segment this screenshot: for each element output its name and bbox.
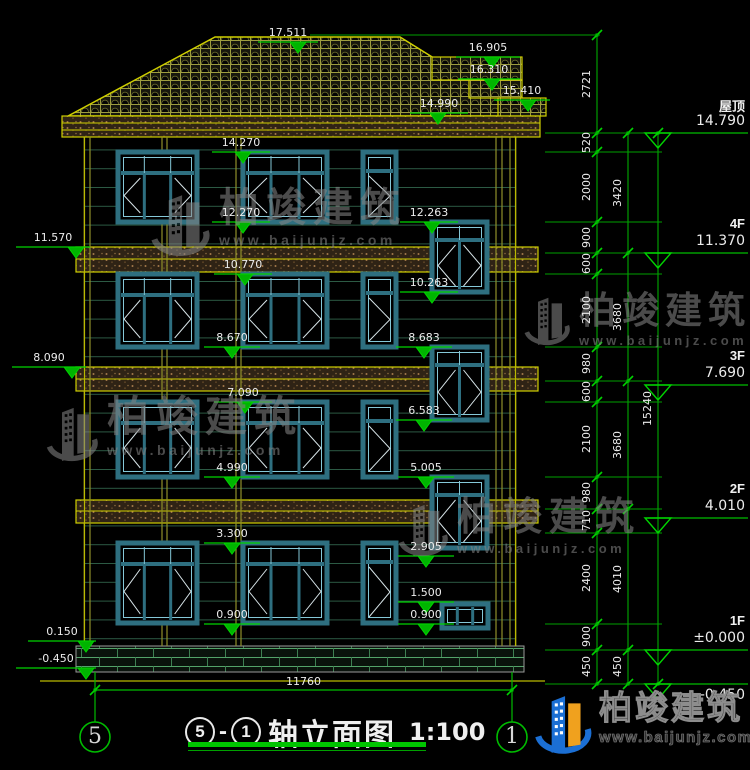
dim-chain-label: 2400 (579, 533, 594, 624)
dim-chain-label: 2000 (579, 152, 594, 222)
brand-text: 柏竣建筑 (599, 691, 750, 726)
drawing-title: 5 - 1 轴立面图 1:100 (185, 710, 485, 754)
level-label: 2F (655, 481, 745, 496)
level-label: 1F (655, 613, 745, 628)
elevation-marker-label: 6.583 (408, 405, 440, 417)
watermark-logo-icon (522, 292, 570, 350)
dim-chain-label: 2100 (579, 274, 594, 347)
dim-chain-label: 450 (579, 650, 594, 684)
elevation-marker-label: 10.770 (224, 259, 263, 271)
watermark-body: 柏竣建筑 www.baijunjz.com (579, 292, 750, 348)
elevation-marker-label: 15.410 (503, 85, 542, 97)
dim-chain-label: 15240 (640, 133, 655, 684)
title-text: 轴立面图 (268, 710, 396, 754)
dim-chain-label: 980 (579, 347, 594, 381)
elevation-marker-label: 14.990 (420, 98, 459, 110)
watermark-logo-icon (148, 188, 210, 262)
elevation-marker-label: 8.090 (33, 352, 65, 364)
elevation-marker-label: 12.270 (222, 207, 261, 219)
plinth (76, 646, 524, 672)
level-value: 11.370 (655, 233, 745, 249)
watermark-url: www.baijunjz.com (107, 442, 303, 458)
watermark: 柏竣建筑 www.baijunjz.com (148, 188, 407, 262)
elevation-marker-label: 10.263 (410, 277, 449, 289)
axis-number: 5 (88, 724, 102, 749)
elevation-marker-label: 8.683 (408, 332, 440, 344)
level-label: 3F (655, 348, 745, 363)
window (363, 402, 396, 477)
watermark-body: 柏竣建筑 www.baijunjz.com (107, 396, 303, 458)
title-underline-thick (188, 742, 426, 747)
elevation-marker-label: 16.310 (470, 64, 509, 76)
elevation-marker-label: 1.500 (410, 587, 442, 599)
title-underline-thin (188, 750, 426, 751)
elevation-marker-label: 14.270 (222, 137, 261, 149)
brand-logo-icon (534, 691, 592, 757)
elevation-marker-label: -0.450 (38, 653, 73, 665)
watermark: 柏竣建筑 www.baijunjz.com (522, 292, 750, 350)
watermark-url: www.baijunjz.com (219, 232, 407, 248)
elevation-marker-label: 0.900 (216, 609, 248, 621)
footer-logo: 柏竣建筑 www.baijunjz.com (534, 691, 750, 757)
dim-chain-label: 3680 (610, 253, 625, 381)
dim-chain-label: 980 (579, 477, 594, 509)
elevation-marker-label: 17.511 (269, 27, 308, 39)
elevation-marker-label: 2.905 (410, 541, 442, 553)
eave-band (62, 116, 540, 137)
dim-chain-label: 2721 (579, 35, 594, 133)
elevation-drawing: 柏竣建筑 www.baijunjz.com 柏竣建筑 www.baijunjz.… (0, 0, 750, 770)
elevation-marker-label: 3.300 (216, 528, 248, 540)
watermark-url: www.baijunjz.com (579, 333, 750, 348)
window (363, 543, 396, 623)
elevation-marker-label: 12.263 (410, 207, 449, 219)
level-value: 14.790 (655, 113, 745, 129)
watermark-brand: 柏竣建筑 (107, 396, 303, 438)
axis-number: 1 (505, 724, 519, 749)
dim-chain-label: 2100 (579, 402, 594, 477)
elevation-marker-label: 0.150 (46, 626, 78, 638)
elevation-marker-label: 0.900 (410, 609, 442, 621)
level-value: 7.690 (655, 365, 745, 381)
dim-chain-label: 900 (579, 622, 594, 652)
window (118, 274, 197, 347)
dim-chain-label: 3420 (610, 133, 625, 253)
window (363, 274, 396, 347)
elevation-marker-label: 7.090 (227, 387, 259, 399)
level-value: ±0.000 (655, 630, 745, 646)
brand-text-block: 柏竣建筑 www.baijunjz.com (599, 691, 750, 746)
elevation-marker-label: 5.005 (410, 462, 442, 474)
dim-chain-label: 450 (610, 650, 625, 684)
dim-chain-label: 4010 (610, 509, 625, 650)
elevation-marker-label: 4.990 (216, 462, 248, 474)
brand-url: www.baijunjz.com (599, 729, 750, 746)
watermark-logo-icon (44, 396, 98, 472)
elevation-marker-label: 11.570 (34, 232, 73, 244)
elevation-marker-label: 8.670 (216, 332, 248, 344)
level-value: 4.010 (655, 498, 745, 514)
elevation-marker-label: 16.905 (469, 42, 508, 54)
dimension-label: 11760 (286, 676, 321, 688)
window (243, 274, 327, 347)
cad-linework (0, 0, 750, 770)
dim-chain-label: 710 (579, 506, 594, 536)
watermark: 柏竣建筑 www.baijunjz.com (44, 396, 303, 472)
elevation-marker-triangle (78, 668, 94, 679)
watermark-brand: 柏竣建筑 (579, 292, 750, 329)
dim-chain-label: 3680 (610, 381, 625, 509)
level-label: 4F (655, 216, 745, 231)
